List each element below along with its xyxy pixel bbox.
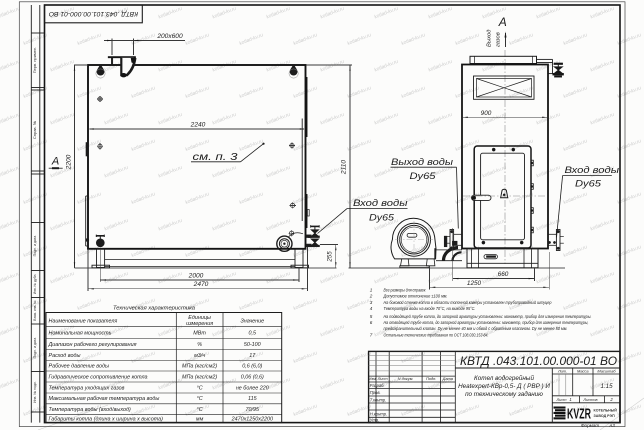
svg-text:Взам. инв. №: Взам. инв. № [33, 300, 37, 321]
svg-text:1: 1 [569, 397, 571, 402]
svg-text:Разраб.: Разраб. [370, 383, 385, 388]
svg-text:2470х1250х2200: 2470х1250х2200 [231, 416, 273, 422]
svg-text:Наименование показателя: Наименование показателя [49, 319, 118, 325]
svg-text:Подп. и дата: Подп. и дата [33, 236, 37, 257]
svg-text:Утв.: Утв. [370, 418, 379, 423]
svg-text:2470: 2470 [193, 281, 209, 288]
svg-text:Dy65: Dy65 [410, 171, 437, 181]
svg-text:На боковой стенке котла в обла: На боковой стенке котла в области топочн… [384, 299, 552, 305]
svg-text:200х600: 200х600 [156, 33, 183, 40]
svg-text:Heatexpert-КВр-0,5- Д ( РВР ): Heatexpert-КВр-0,5- Д ( РВР ) И [458, 383, 550, 390]
svg-text:Масштаб: Масштаб [597, 368, 616, 373]
svg-text:17: 17 [249, 353, 256, 359]
svg-text:Выход: Выход [487, 29, 493, 47]
svg-text:Остальные технические требован: Остальные технические требования по ОСТ … [384, 332, 489, 337]
svg-text:1:15: 1:15 [600, 383, 613, 390]
svg-text:Все размеры для справок: Все размеры для справок [384, 288, 427, 293]
svg-text:Справ. №: Справ. № [32, 121, 37, 139]
svg-text:Расход воды: Расход воды [49, 353, 81, 359]
svg-text:На отводящей трубе котла, до з: На отводящей трубе котла, до запорной ар… [384, 319, 589, 325]
svg-text:N докум.: N докум. [398, 376, 414, 381]
svg-text:3: 3 [370, 300, 373, 305]
svg-text:МПа (кгс/см2): МПа (кгс/см2) [182, 374, 217, 380]
svg-text:7: 7 [370, 332, 373, 337]
svg-text:Лист: Лист [377, 376, 389, 381]
svg-text:ЗАВОД РЭП: ЗАВОД РЭП [594, 414, 616, 418]
svg-text:0,6 (6,0): 0,6 (6,0) [242, 364, 262, 370]
svg-text:660: 660 [498, 271, 509, 278]
svg-text:Температура воды на входе 70°: Температура воды на входе 70°С, на выход… [384, 306, 476, 311]
svg-text:Значение: Значение [240, 319, 264, 325]
svg-text:Габариты котла (длина х ширина: Габариты котла (длина х ширина х высота) [49, 416, 164, 422]
svg-text:Дата: Дата [442, 376, 454, 381]
svg-text:°С: °С [197, 385, 203, 391]
svg-text:газов: газов [496, 32, 502, 47]
svg-text:%: % [197, 342, 202, 348]
svg-text:1: 1 [370, 288, 373, 293]
svg-text:Вход воды: Вход воды [565, 165, 620, 176]
svg-text:м3/ч: м3/ч [194, 353, 205, 359]
svg-text:Допустимое отклонение ±100 мм: Допустимое отклонение ±100 мм. [383, 294, 448, 299]
svg-text:70/95: 70/95 [246, 407, 260, 413]
svg-text:°С: °С [197, 396, 203, 402]
svg-text:Температура воды (вход/выход): Температура воды (вход/выход) [49, 407, 132, 413]
svg-text:5: 5 [370, 314, 373, 319]
svg-text:2000: 2000 [188, 272, 204, 279]
svg-text:2: 2 [369, 294, 373, 299]
svg-text:Подп. и дата: Подп. и дата [33, 338, 37, 359]
svg-text:Температура уходящих газов: Температура уходящих газов [49, 385, 125, 391]
svg-text:°С: °С [197, 407, 203, 413]
svg-text:Dy65: Dy65 [369, 212, 395, 222]
svg-text:115: 115 [248, 396, 258, 402]
svg-text:0,06 (0,6): 0,06 (0,6) [241, 374, 264, 380]
svg-text:измерения: измерения [186, 321, 213, 327]
svg-text:Перв. примен.: Перв. примен. [32, 47, 37, 74]
svg-text:А: А [498, 15, 507, 29]
svg-text:МПа (кгс/см2): МПа (кгс/см2) [182, 364, 217, 370]
svg-text:Гидравлическое сопротивление к: Гидравлическое сопротивление котла [49, 374, 148, 380]
svg-text:Пров.: Пров. [370, 390, 381, 395]
svg-text:0,5: 0,5 [249, 330, 257, 336]
svg-text:предохранительный клапан. Dу н: предохранительный клапан. Dу не менее 40… [384, 325, 568, 331]
svg-text:2200: 2200 [66, 154, 73, 170]
svg-text:Вход воды: Вход воды [353, 198, 408, 209]
svg-text:2110: 2110 [341, 160, 348, 176]
svg-text:Инв. № подл.: Инв. № подл. [33, 381, 37, 403]
svg-text:Лист: Лист [555, 397, 567, 402]
svg-text:по техническому заданию: по техническому заданию [465, 390, 543, 398]
svg-text:КВТД .043.101.00.000-01 ВО: КВТД .043.101.00.000-01 ВО [48, 10, 138, 17]
svg-text:А3: А3 [608, 423, 615, 428]
svg-text:50-100: 50-100 [244, 342, 261, 348]
svg-text:Т.контр.: Т.контр. [370, 397, 387, 402]
svg-text:4: 4 [370, 306, 373, 311]
svg-text:Изм: Изм [369, 376, 377, 381]
svg-text:На подводящей трубе котла, до: На подводящей трубе котла, до запорной а… [384, 313, 592, 319]
svg-text:КОТЕЛЬНЫЙ: КОТЕЛЬНЫЙ [594, 409, 618, 413]
svg-text:Рабочее давление воды: Рабочее давление воды [49, 364, 109, 370]
svg-text:2240: 2240 [190, 121, 206, 128]
svg-text:Формат: Формат [581, 423, 599, 428]
svg-text:Диапазон рабочего регулировани: Диапазон рабочего регулирования [48, 342, 137, 348]
svg-text:Подп.: Подп. [426, 376, 436, 381]
svg-text:6: 6 [370, 320, 373, 325]
svg-text:Котел водогрейный: Котел водогрейный [474, 374, 534, 382]
svg-text:Масса: Масса [577, 368, 589, 373]
svg-text:Лит.: Лит. [557, 368, 567, 373]
svg-text:Инв. № дубл.: Инв. № дубл. [33, 274, 37, 294]
svg-text:А: А [51, 156, 59, 168]
svg-text:Dy65: Dy65 [575, 179, 602, 189]
svg-text:Н.контр.: Н.контр. [370, 411, 387, 416]
svg-text:255: 255 [326, 251, 333, 263]
svg-text:Максимальная рабочая температу: Максимальная рабочая температура воды [49, 396, 160, 402]
svg-text:Выход воды: Выход воды [391, 157, 453, 168]
svg-text:МВт: МВт [193, 330, 206, 336]
svg-text:КВТД .043.101.00.000-01 ВО: КВТД .043.101.00.000-01 ВО [460, 356, 617, 368]
svg-text:900: 900 [481, 110, 492, 117]
svg-text:KVZR: KVZR [567, 407, 591, 423]
svg-text:Номинальная мощность: Номинальная мощность [49, 330, 112, 336]
svg-text:Техническая характеристика: Техническая характеристика [113, 306, 196, 312]
svg-text:1250: 1250 [467, 280, 482, 287]
svg-text:не более 220: не более 220 [236, 385, 269, 391]
svg-text:Листов: Листов [582, 397, 597, 402]
svg-text:мм: мм [196, 416, 204, 422]
